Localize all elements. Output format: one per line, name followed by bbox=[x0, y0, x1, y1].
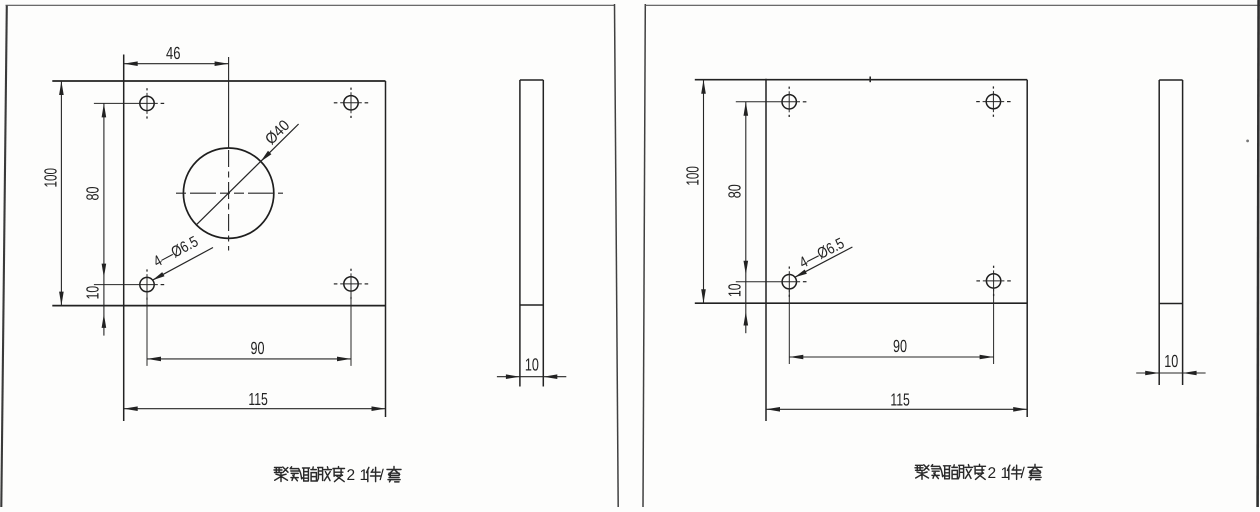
svg-text:10: 10 bbox=[1164, 351, 1178, 371]
svg-text:1: 1 bbox=[360, 467, 369, 484]
svg-text:115: 115 bbox=[890, 390, 910, 410]
svg-text:115: 115 bbox=[248, 389, 268, 409]
svg-text:1: 1 bbox=[1001, 465, 1010, 482]
svg-text:/: / bbox=[1021, 465, 1026, 482]
svg-text:10: 10 bbox=[525, 355, 539, 375]
svg-text:100: 100 bbox=[40, 168, 60, 188]
svg-text:100: 100 bbox=[683, 166, 703, 186]
svg-text:46: 46 bbox=[166, 43, 181, 63]
svg-text:90: 90 bbox=[893, 336, 907, 356]
svg-text:/: / bbox=[380, 467, 385, 484]
svg-text:2: 2 bbox=[988, 465, 997, 482]
svg-text:80: 80 bbox=[725, 184, 745, 198]
svg-text:90: 90 bbox=[251, 338, 265, 358]
svg-text:10: 10 bbox=[83, 286, 103, 300]
svg-text:2: 2 bbox=[347, 467, 356, 484]
svg-text:80: 80 bbox=[83, 186, 103, 200]
svg-text:10: 10 bbox=[724, 283, 744, 297]
